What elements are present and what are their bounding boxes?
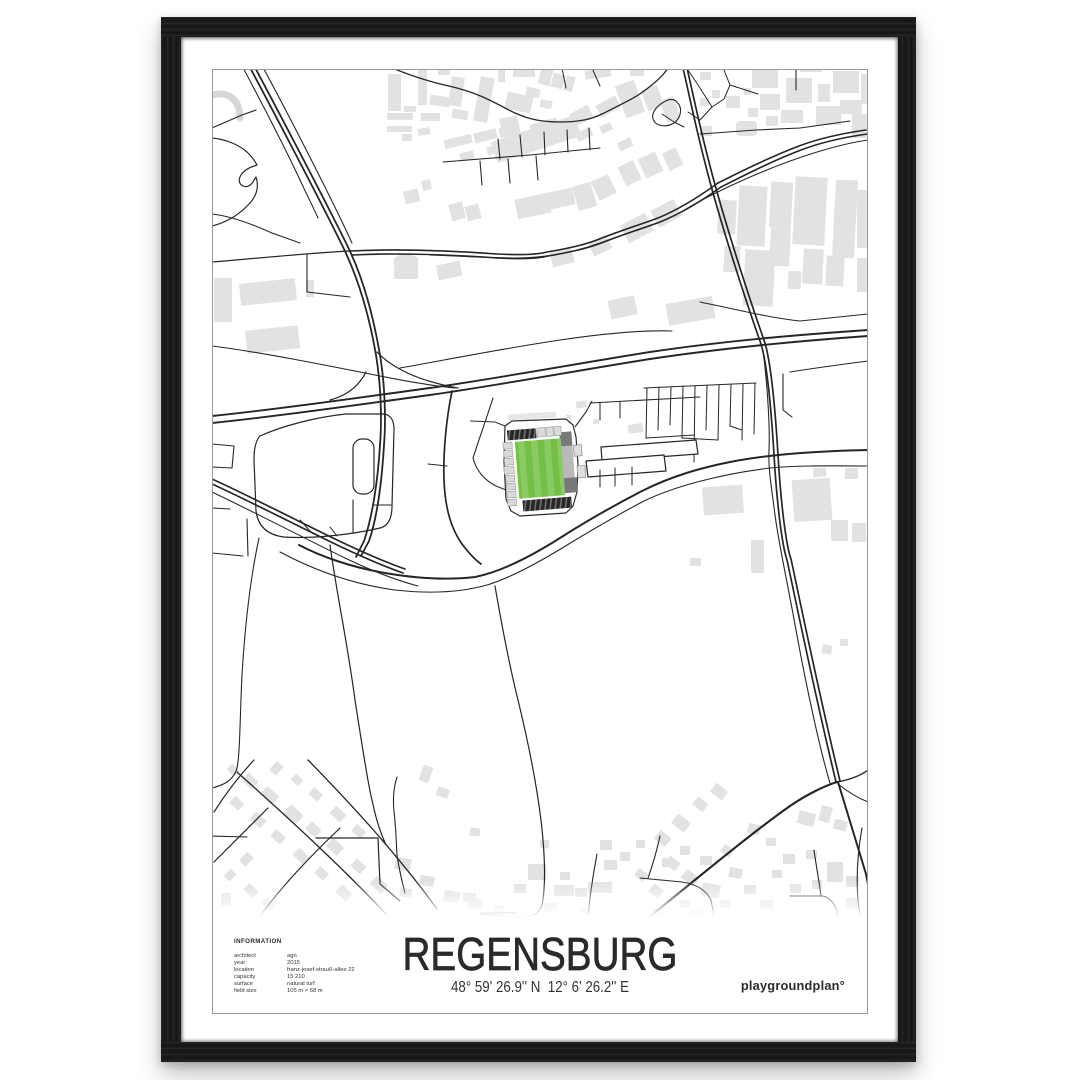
svg-text:franz-josef-strauß-allee 22: franz-josef-strauß-allee 22: [287, 967, 355, 973]
svg-text:105 m × 68 m: 105 m × 68 m: [287, 988, 323, 994]
svg-text:REGENSBURG: REGENSBURG: [403, 928, 678, 980]
svg-text:year: year: [234, 960, 245, 966]
svg-text:natural turf: natural turf: [287, 981, 315, 987]
svg-text:surface: surface: [234, 981, 253, 987]
svg-text:48° 59' 26.9'' N 12° 6' 26.2': 48° 59' 26.9'' N 12° 6' 26.2'' E: [451, 979, 629, 996]
svg-text:playgroundplan°: playgroundplan°: [741, 978, 845, 993]
svg-text:INFORMATION: INFORMATION: [234, 938, 282, 945]
svg-text:field size: field size: [234, 988, 257, 994]
svg-text:2015: 2015: [287, 960, 300, 966]
svg-text:location: location: [234, 967, 254, 973]
svg-text:15 210: 15 210: [287, 974, 305, 980]
svg-text:agn: agn: [287, 953, 297, 959]
svg-text:architect: architect: [234, 953, 256, 959]
svg-text:capacity: capacity: [234, 974, 255, 980]
